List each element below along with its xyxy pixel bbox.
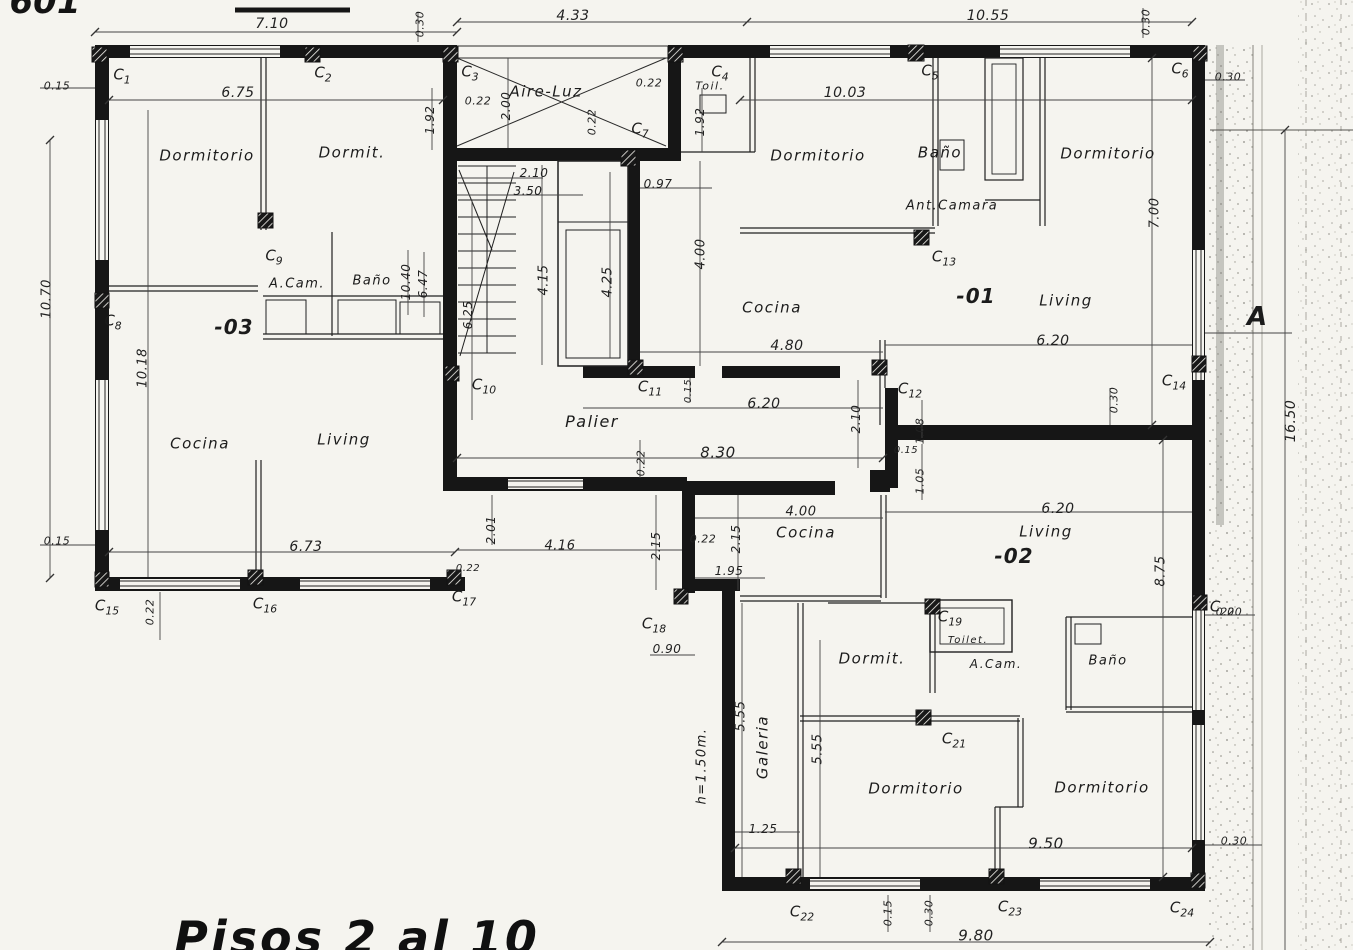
dimension-label: 6.20 [1041,502,1074,516]
dimension-label: 0.15 [44,536,71,547]
column-label: C9 [265,249,282,268]
room-label: Dormitorio [1060,147,1155,162]
column-label: C21 [942,732,966,751]
room-label: Palier [565,414,619,430]
dimension-label: 6.73 [289,540,322,554]
dimension-label: 2.00 [500,92,512,121]
room-label: Dormitorio [868,782,963,797]
dimension-label: 1.92 [424,106,436,135]
dimension-label: 16.50 [1284,400,1298,443]
column-label: C22 [790,905,814,924]
column-label: C6 [1171,62,1188,81]
dimension-label: 0.20 [1216,607,1243,618]
dimension-label: 10.03 [824,86,867,100]
dimension-label: 0.30 [415,11,426,38]
dimension-label: 0.30 [1141,9,1152,36]
column-label: C11 [638,380,662,399]
floor-plan-sheet: DormitorioDormit.A.Cam.BañoCocinaLivingA… [0,0,1353,950]
room-label: Cocina [170,437,230,452]
dimension-label: 0.30 [1215,72,1242,83]
column-label: C24 [1170,901,1194,920]
dimension-label: 4.16 [545,540,576,553]
dimension-label: 1.25 [749,823,778,835]
dimension-label: 0.22 [145,599,156,626]
dimension-label: 9.50 [1028,837,1063,852]
room-label: Cocina [776,526,836,541]
column-label: C5 [921,64,938,83]
room-label: h=1.50m. [696,728,709,805]
dimension-label: 4.00 [695,239,708,270]
column-label: C4 [711,65,728,84]
dimension-label: 6.47 [417,270,429,299]
dimension-label: 7.10 [255,17,288,31]
corner-note: 601 [10,0,81,19]
dimension-label: 0.97 [644,178,673,190]
dimension-label: 0.22 [636,450,647,477]
dimension-label: 0.15 [894,446,918,456]
dimension-label: 5.55 [812,734,825,765]
dimension-label: 6.20 [747,397,780,411]
column-label: C2 [314,66,331,85]
unit-number-label: -02 [994,546,1033,566]
room-label: Aire-Luz [510,85,583,100]
dimension-label: 2.01 [485,516,497,545]
room-label: Baño [918,146,962,161]
dimension-label: 4.80 [770,339,803,353]
room-label: Toilet. [948,636,988,646]
room-label: Galeria [756,715,771,779]
dimension-label: 7.00 [1149,198,1162,229]
dimension-label: 8.30 [700,446,735,461]
dimension-label: 0.22 [465,96,492,107]
room-label: A.Cam. [970,658,1022,670]
dimension-label: 5.55 [735,701,748,732]
room-label: Dormitorio [770,149,865,164]
unit-number-label: -01 [956,286,995,306]
dimension-label: 4.25 [602,267,615,298]
dimension-label: 0.15 [44,81,71,92]
dimension-label: 8.75 [1155,556,1168,587]
dimension-label: 2.15 [650,532,662,561]
room-label: Dormit. [839,652,906,667]
column-label: C18 [642,617,666,636]
dimension-label: 0.22 [587,109,598,136]
dimension-label: 6.25 [462,301,474,330]
dimension-label: 0.22 [456,564,480,574]
room-label: Cocina [742,301,802,316]
dimension-label: 6.75 [221,86,254,100]
room-label: Living [1039,294,1093,309]
room-label: Dormit. [319,146,386,161]
dimension-label: 10.40 [400,264,412,301]
dimension-label: 10.55 [967,9,1010,23]
room-label: Baño [1088,655,1127,668]
room-label: Living [317,433,371,448]
dimension-label: 2.10 [520,167,549,179]
column-label: C13 [932,250,956,269]
column-label: C23 [998,900,1022,919]
dimension-label: 1.05 [915,468,926,495]
dimension-label: 4.15 [538,265,551,296]
section-marker-a: A [1247,304,1267,330]
dimension-label: 4.00 [786,506,817,519]
dimension-label: 1.95 [715,565,744,577]
dimension-label: 10.18 [137,348,150,388]
room-label: A.Cam. [269,278,325,291]
room-label: Dormitorio [1054,781,1149,796]
dimension-label: 10.70 [41,279,54,319]
dimension-label: 0.30 [1109,387,1120,414]
dimension-label: 0.15 [883,900,894,927]
dimension-label: 2.10 [850,405,862,434]
room-label: Baño [352,275,391,288]
dimension-label: 9.80 [958,929,993,944]
column-label: C14 [1162,374,1186,393]
dimension-label: 3.50 [514,185,543,197]
dimension-label: 0.30 [1221,836,1248,847]
room-label: Dormitorio [159,149,254,164]
column-label: C8 [104,314,121,333]
room-label: Living [1019,525,1073,540]
column-label: C10 [472,378,496,397]
dimension-label: 2.15 [730,525,742,554]
column-label: C3 [461,65,478,84]
column-label: C17 [452,590,476,609]
column-label: C12 [898,382,922,401]
dimension-label: 0.22 [690,534,717,545]
labels-layer: DormitorioDormit.A.Cam.BañoCocinaLivingA… [0,0,1353,950]
dimension-label: 6.20 [1036,334,1069,348]
column-label: C7 [631,122,648,141]
dimension-label: 1.92 [694,108,706,137]
column-label: C1 [113,68,130,87]
dimension-label: 0.30 [924,900,935,927]
dimension-label: 0.90 [653,643,682,655]
column-label: C19 [938,610,962,629]
dimension-label: 0.15 [684,379,694,403]
column-label: C15 [95,599,119,618]
dimension-label: 4.33 [556,9,589,23]
room-label: Ant.Camara [906,200,998,213]
column-label: C16 [253,597,277,616]
dimension-label: 1.08 [915,418,926,445]
plan-title: Pisos 2 al 10 [174,915,540,950]
unit-number-label: -03 [214,317,253,337]
dimension-label: 0.22 [636,78,663,89]
